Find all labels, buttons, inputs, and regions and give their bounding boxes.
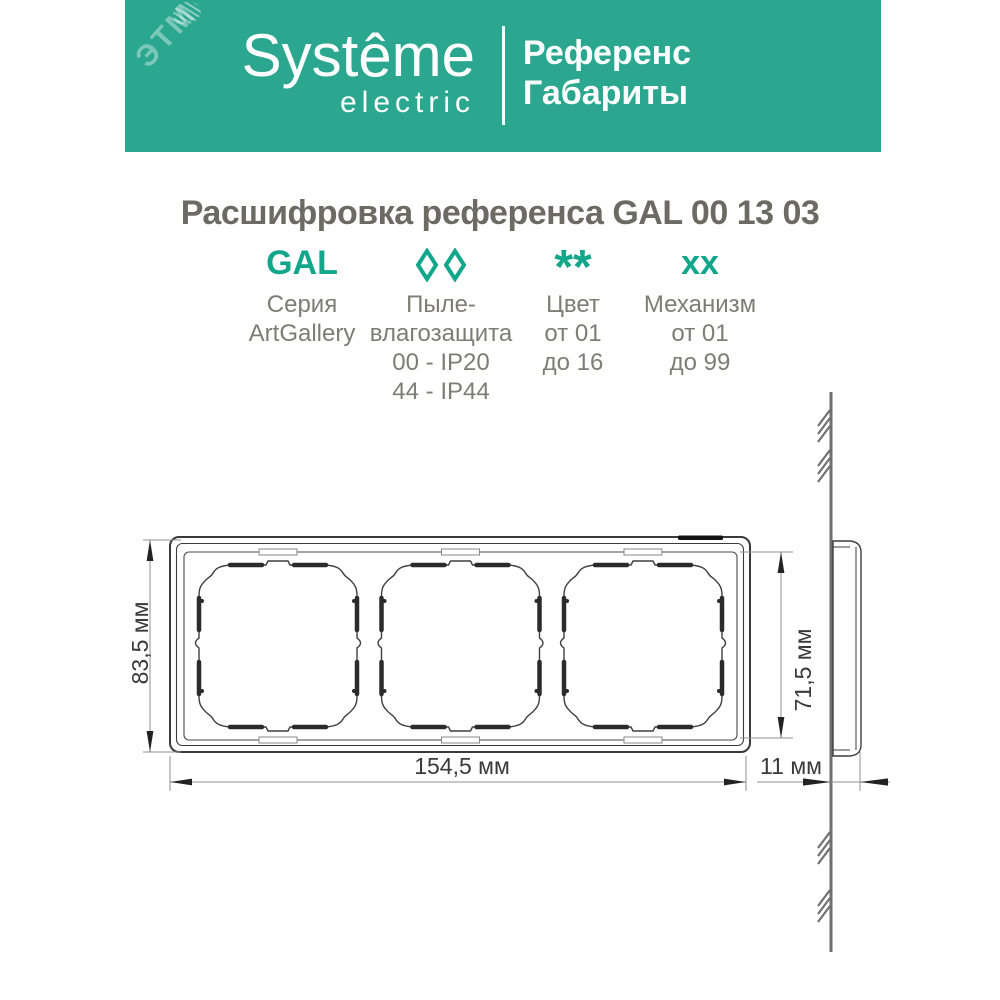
header-divider xyxy=(502,26,505,125)
dim-width: 154,5 мм xyxy=(170,753,746,791)
ref-line: до 99 xyxy=(595,348,805,377)
top-edge-mark xyxy=(678,536,723,541)
dim-width-label: 154,5 мм xyxy=(414,753,510,779)
brand-sub: electric xyxy=(223,88,475,118)
brand-logo: Systême electric xyxy=(223,26,475,118)
doc-type-line2: Габариты xyxy=(523,73,691,113)
frame-front-view xyxy=(170,536,750,753)
brand-name: Systême xyxy=(223,26,475,86)
frame-side-view xyxy=(833,541,861,756)
page: ЭТМ Systême electric Референс Габариты Р… xyxy=(0,0,1000,1000)
dim-inner-height: 71,5 мм xyxy=(740,552,816,738)
dimension-drawing: 83,5 мм 71,5 мм 154,5 мм 11 мм xyxy=(0,380,1000,970)
wall-line xyxy=(818,392,831,952)
doc-type: Референс Габариты xyxy=(523,33,691,113)
header-band: ЭТМ Systême electric Референс Габариты xyxy=(125,0,881,152)
dim-depth-label: 11 мм xyxy=(760,753,822,779)
page-title: Расшифровка референса GAL 00 13 03 xyxy=(0,194,1000,233)
ref-line: Механизм xyxy=(595,290,805,319)
dim-height-label: 83,5 мм xyxy=(127,602,153,685)
ref-col-mechanism: xx Механизм от 01 до 99 xyxy=(595,242,805,377)
ref-code-mechanism: xx xyxy=(595,242,805,286)
dim-depth: 11 мм xyxy=(757,752,890,791)
ref-line: от 01 xyxy=(595,319,805,348)
doc-type-line1: Референс xyxy=(523,33,691,73)
dim-inner-height-label: 71,5 мм xyxy=(790,629,816,712)
